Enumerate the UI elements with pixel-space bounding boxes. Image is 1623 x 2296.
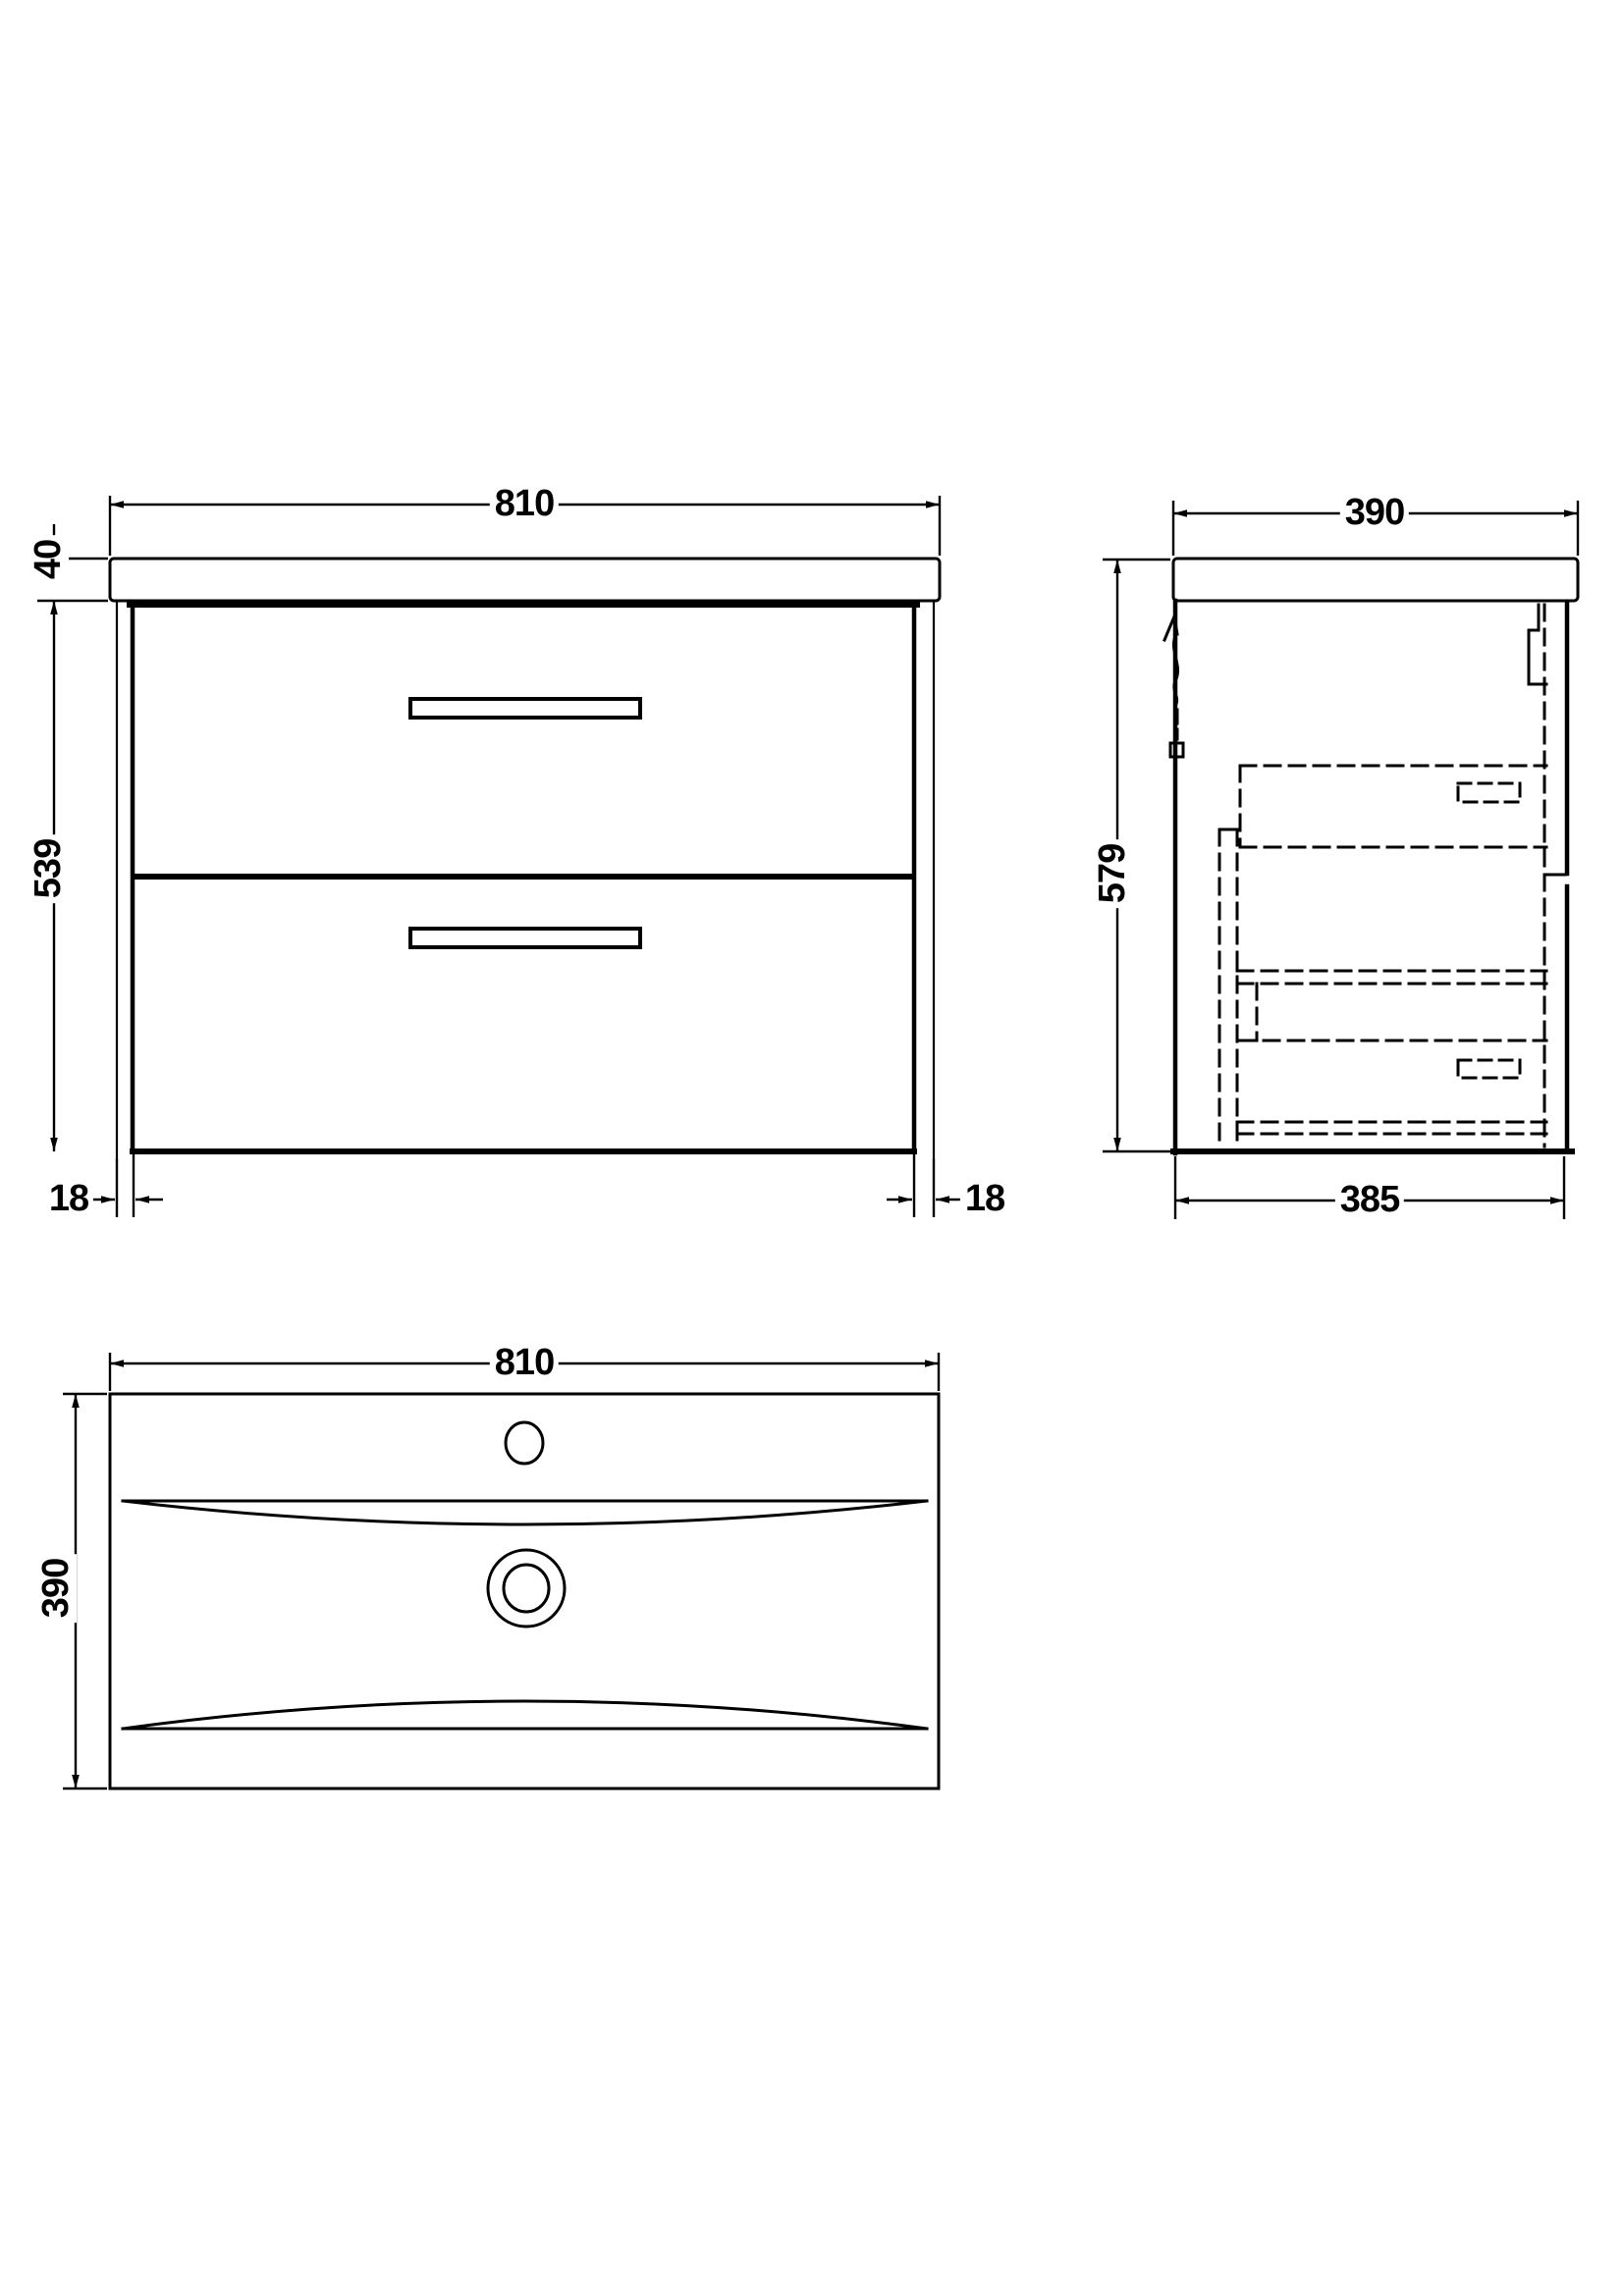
bottom-drawer-handle bbox=[410, 929, 640, 947]
basin-front-curve bbox=[123, 1501, 927, 1524]
plan-depth-label: 390 bbox=[37, 1554, 77, 1623]
top-drawer-box-hidden bbox=[1240, 766, 1546, 847]
technical-drawing bbox=[0, 0, 1623, 2296]
basin-contours bbox=[123, 1501, 927, 1729]
front-cabinet-height-label: 539 bbox=[29, 834, 69, 903]
plan-width-label: 810 bbox=[490, 1344, 559, 1383]
basin-back-curve bbox=[123, 1701, 927, 1729]
front-panel-dimensions bbox=[90, 1154, 962, 1217]
front-cabinet bbox=[117, 601, 934, 1159]
side-worktop bbox=[1173, 559, 1578, 601]
front-worktop-thickness-label: 40 bbox=[29, 535, 69, 584]
side-hidden-details bbox=[1219, 605, 1546, 1147]
front-worktop bbox=[110, 559, 940, 601]
bottom-drawer-box-hidden bbox=[1237, 971, 1546, 1134]
front-width-label: 810 bbox=[490, 485, 559, 524]
bottom-drawer-handle-hidden bbox=[1458, 1060, 1520, 1078]
top-drawer-handle-hidden bbox=[1458, 783, 1520, 802]
drain-hole bbox=[488, 1550, 565, 1627]
side-view bbox=[1103, 501, 1578, 1219]
side-depth-label: 390 bbox=[1340, 494, 1409, 533]
side-cabinet-outline bbox=[1173, 601, 1572, 1153]
side-cabinet-depth-label: 385 bbox=[1335, 1181, 1404, 1220]
drawing-sheet: 810 40 539 18 18 390 579 385 810 390 bbox=[0, 0, 1623, 2296]
front-right-panel-label: 18 bbox=[960, 1180, 1009, 1219]
plan-view bbox=[63, 1353, 939, 1789]
front-view bbox=[37, 496, 962, 1217]
side-height-label: 579 bbox=[1094, 839, 1133, 908]
top-drawer-handle bbox=[410, 699, 640, 718]
tap-hole bbox=[506, 1422, 543, 1464]
front-left-panel-label: 18 bbox=[44, 1180, 93, 1219]
